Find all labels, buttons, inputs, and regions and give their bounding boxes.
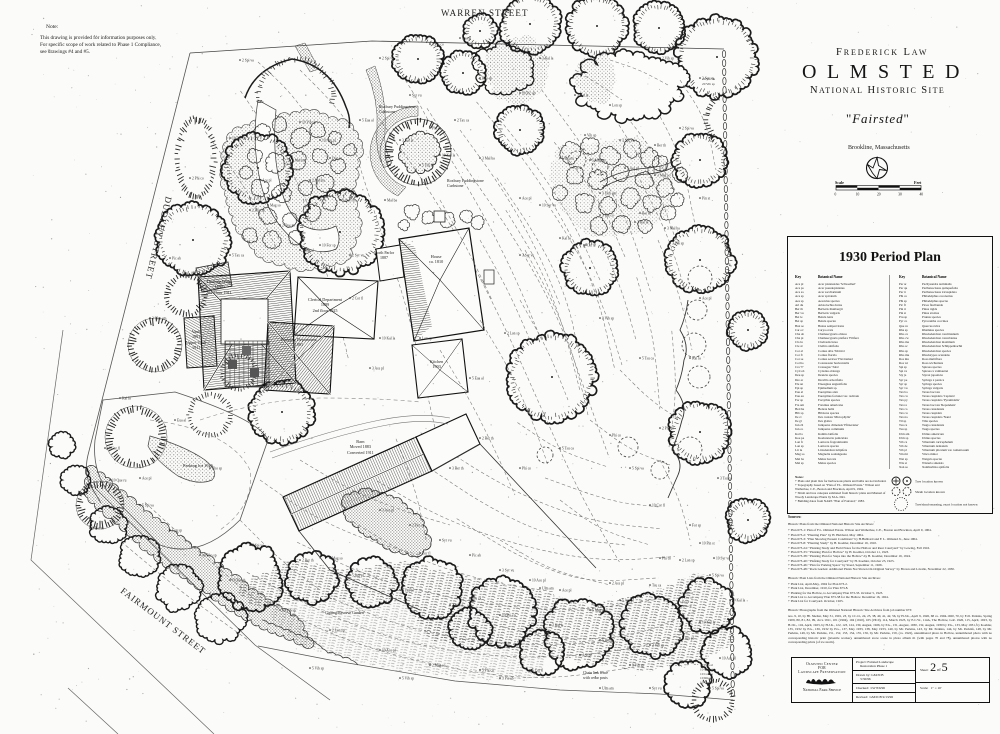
svg-text:2 Spi va: 2 Spi va [242, 59, 254, 63]
svg-text:Kal la: Kal la [562, 237, 571, 241]
svg-text:2 Mal ba: 2 Mal ba [312, 179, 325, 183]
svg-text:3 Vib sp: 3 Vib sp [672, 242, 684, 246]
svg-text:Tsu ca: Tsu ca [652, 584, 662, 588]
svg-text:5 Spi va: 5 Spi va [712, 574, 724, 578]
svg-text:10: 10 [856, 193, 860, 197]
svg-text:5 Phi co: 5 Phi co [482, 669, 494, 673]
svg-text:3 Syr vu: 3 Syr vu [622, 139, 634, 143]
svg-text:10 Tax cu: 10 Tax cu [700, 681, 714, 685]
svg-text:2 Rho sp: 2 Rho sp [252, 209, 265, 213]
svg-text:5 Tsu ca: 5 Tsu ca [562, 447, 574, 451]
svg-text:5 Tax ca: 5 Tax ca [232, 254, 244, 258]
svg-text:Phi co: Phi co [522, 467, 531, 471]
svg-text:10 Kal la: 10 Kal la [382, 337, 396, 341]
svg-text:10 Kal la: 10 Kal la [442, 154, 456, 158]
svg-text:Que ru: Que ru [332, 157, 342, 161]
svg-text:Tsu ca: Tsu ca [472, 597, 482, 601]
svg-text:5 Tax ca: 5 Tax ca [602, 52, 614, 56]
svg-text:Rho sp: Rho sp [212, 467, 222, 471]
svg-text:10 Ace pl: 10 Ace pl [322, 139, 336, 143]
svg-text:5 Ace pl: 5 Ace pl [622, 599, 634, 603]
svg-text:Tree location known: Tree location known [915, 480, 943, 484]
svg-text:3 Kal la: 3 Kal la [402, 139, 414, 143]
svg-text:10 Rho sp: 10 Rho sp [202, 554, 217, 558]
svg-text:Scale: Scale [835, 180, 844, 185]
svg-text:3 Ulm am: 3 Ulm am [152, 317, 167, 321]
svg-text:5 Phi co: 5 Phi co [432, 43, 444, 47]
svg-text:3 Ace pl: 3 Ace pl [382, 509, 394, 513]
svg-text:2 Ace pl: 2 Ace pl [612, 582, 624, 586]
svg-text:Kal la: Kal la [122, 397, 131, 401]
svg-text:2 Spi va: 2 Spi va [682, 127, 694, 131]
svg-text:2 Lon sp: 2 Lon sp [507, 332, 520, 336]
svg-text:10 Cor se: 10 Cor se [700, 672, 713, 676]
svg-text:10 Pin st: 10 Pin st [702, 542, 715, 546]
svg-text:5 Mag so: 5 Mag so [592, 159, 606, 163]
svg-text:5 Vib sp: 5 Vib sp [422, 164, 434, 168]
svg-text:5 Ace pl: 5 Ace pl [627, 167, 639, 171]
svg-text:Syr vu: Syr vu [652, 687, 662, 691]
svg-text:10 For sp: 10 For sp [322, 244, 336, 248]
svg-text:5 Eua al: 5 Eua al [362, 119, 374, 123]
svg-text:3 Pic ab: 3 Pic ab [502, 677, 514, 681]
svg-text:3 Ber th: 3 Ber th [452, 467, 464, 471]
svg-text:Lon sp: Lon sp [612, 104, 622, 108]
svg-text:3 Ulm am: 3 Ulm am [602, 192, 617, 196]
svg-text:3 Mal ba: 3 Mal ba [482, 157, 495, 161]
svg-text:3 Syr vu: 3 Syr vu [502, 569, 514, 573]
svg-text:Phi co: Phi co [662, 557, 671, 561]
svg-text:10 Ber th: 10 Ber th [232, 579, 246, 583]
svg-text:5 Spi va: 5 Spi va [632, 467, 644, 471]
svg-text:0: 0 [835, 193, 837, 197]
svg-text:5 Ber th: 5 Ber th [602, 639, 614, 643]
svg-text:10 Rho vi: 10 Rho vi [700, 676, 713, 680]
svg-text:2 Lon sp: 2 Lon sp [332, 629, 345, 633]
svg-text:For sp: For sp [692, 524, 701, 528]
svg-text:10 Cor al: 10 Cor al [700, 667, 713, 671]
svg-text:3 Phi co: 3 Phi co [602, 214, 614, 218]
svg-text:Phi co: Phi co [612, 434, 621, 438]
svg-text:5 Spi va: 5 Spi va [712, 687, 724, 691]
svg-text:2 Spi va: 2 Spi va [382, 57, 394, 61]
svg-text:Shrub location known: Shrub location known [915, 490, 945, 494]
svg-text:WARREN STREET: WARREN STREET [441, 8, 529, 18]
svg-text:3 Kal la: 3 Kal la [542, 57, 554, 61]
svg-text:2 Syr vu: 2 Syr vu [352, 254, 364, 258]
svg-text:5 Spi va: 5 Spi va [252, 544, 264, 548]
svg-text:3 Kal la: 3 Kal la [577, 94, 589, 98]
svg-text:10 Kal la: 10 Kal la [702, 621, 716, 625]
svg-text:Mag so: Mag so [270, 204, 281, 208]
svg-text:Ace pl: Ace pl [582, 654, 591, 658]
svg-text:10 Cor fl: 10 Cor fl [652, 504, 665, 508]
svg-text:Phi co: Phi co [432, 127, 441, 131]
svg-text:2 Ber th: 2 Ber th [482, 437, 494, 441]
svg-text:Eua al: Eua al [177, 419, 186, 423]
svg-text:Cor fl: Cor fl [587, 244, 595, 248]
svg-text:Eua al: Eua al [462, 37, 471, 41]
svg-text:10 Eua al: 10 Eua al [700, 663, 713, 667]
svg-text:Syr vu: Syr vu [442, 539, 452, 543]
svg-text:2 Que ru: 2 Que ru [282, 224, 295, 228]
svg-text:2 Vib sp: 2 Vib sp [662, 57, 674, 61]
svg-text:2 Pin st: 2 Pin st [452, 604, 463, 608]
svg-text:5 Mag so: 5 Mag so [592, 609, 606, 613]
svg-text:Pic ab: Pic ab [172, 257, 181, 261]
svg-text:2 Mag so: 2 Mag so [432, 664, 446, 668]
svg-text:3 Ber th: 3 Ber th [92, 527, 104, 531]
svg-text:3 Tsu ca: 3 Tsu ca [720, 477, 732, 481]
svg-text:7 Tax ca: 7 Tax ca [680, 604, 692, 608]
svg-text:10 Vib sp: 10 Vib sp [302, 121, 316, 125]
svg-text:5 Vib sp: 5 Vib sp [402, 677, 414, 681]
svg-text:3 Kal la: 3 Kal la [552, 624, 564, 628]
svg-text:10 Ace pl: 10 Ace pl [532, 579, 546, 583]
svg-text:Feet: Feet [914, 180, 922, 185]
svg-text:Vib sp: Vib sp [587, 134, 596, 138]
svg-text:2 Kal la: 2 Kal la [637, 221, 649, 225]
svg-text:10 Ace pl: 10 Ace pl [722, 657, 736, 661]
svg-text:3 Ace pl: 3 Ace pl [372, 367, 384, 371]
svg-text:Ace pl: Ace pl [522, 197, 531, 201]
svg-text:Lon sp: Lon sp [422, 337, 432, 341]
svg-text:2 Phi co: 2 Phi co [662, 427, 674, 431]
svg-text:3 Vib sp: 3 Vib sp [632, 664, 644, 668]
svg-text:3 Syr vu: 3 Syr vu [702, 77, 714, 81]
svg-text:Ace pl: Ace pl [262, 179, 271, 183]
svg-text:Tree/shrub massing, exact loca: Tree/shrub massing, exact location not k… [915, 503, 978, 508]
svg-text:30: 30 [898, 193, 902, 197]
svg-text:2 Tax ca: 2 Tax ca [412, 524, 424, 528]
svg-text:5 Ace pl: 5 Ace pl [682, 637, 694, 641]
svg-text:10 Cor se: 10 Cor se [680, 600, 693, 604]
svg-text:Ulm am: Ulm am [562, 157, 574, 161]
svg-text:5 Ace pl: 5 Ace pl [352, 574, 364, 578]
svg-text:10 Que ru: 10 Que ru [112, 479, 127, 483]
svg-text:5 Que ru: 5 Que ru [342, 199, 355, 203]
svg-text:40: 40 [920, 193, 924, 197]
svg-text:5 Eua al: 5 Eua al [302, 249, 314, 253]
svg-text:2 Lon sp: 2 Lon sp [682, 559, 695, 563]
svg-text:10 Kal la: 10 Kal la [732, 599, 746, 603]
svg-text:Ace pl: Ace pl [562, 589, 571, 593]
svg-text:10 Cor fl: 10 Cor fl [107, 447, 120, 451]
svg-text:10 Cor al: 10 Cor al [680, 595, 693, 599]
svg-text:Syr vu: Syr vu [412, 94, 422, 98]
svg-text:3 Mag so: 3 Mag so [657, 174, 671, 178]
svg-text:Mal ba: Mal ba [387, 199, 397, 203]
svg-text:2 Ber th: 2 Ber th [302, 559, 314, 563]
svg-text:Ulm am: Ulm am [602, 687, 614, 691]
svg-text:Cor fl: Cor fl [422, 552, 430, 556]
svg-text:Mag so: Mag so [332, 557, 343, 561]
svg-text:Ace pl: Ace pl [702, 297, 711, 301]
svg-text:FAIRMOUNT STREET: FAIRMOUNT STREET [119, 586, 208, 657]
svg-text:3 Mal ba: 3 Mal ba [667, 227, 680, 231]
svg-text:Pin st: Pin st [702, 197, 710, 201]
svg-text:5 Spi va: 5 Spi va [142, 504, 154, 508]
svg-text:10 Syr vu: 10 Syr vu [716, 557, 730, 561]
svg-text:10 Eua al: 10 Eua al [680, 591, 693, 595]
svg-text:5 Tsu ca: 5 Tsu ca [642, 357, 654, 361]
svg-text:10 Phi co: 10 Phi co [502, 614, 516, 618]
svg-text:5 Vib sp: 5 Vib sp [312, 667, 324, 671]
svg-text:3 Tsu ca: 3 Tsu ca [402, 589, 414, 593]
svg-text:2 Tax ca: 2 Tax ca [457, 119, 469, 123]
svg-text:Ace pl: Ace pl [142, 477, 151, 481]
svg-text:DUDLEY STREET: DUDLEY STREET [144, 196, 174, 281]
svg-text:Rho sp: Rho sp [482, 77, 492, 81]
svg-text:10 Ace pl: 10 Ace pl [382, 649, 396, 653]
svg-text:Kal la: Kal la [692, 357, 701, 361]
svg-text:10 Ber th: 10 Ber th [232, 137, 246, 141]
svg-text:2 Mal ba: 2 Mal ba [292, 159, 305, 163]
svg-text:5 Cor fl: 5 Cor fl [532, 669, 543, 673]
svg-text:2 Phi co: 2 Phi co [192, 177, 204, 181]
svg-text:5 Eua al: 5 Eua al [472, 377, 484, 381]
svg-text:2 Vib sp: 2 Vib sp [652, 644, 664, 648]
svg-text:20: 20 [877, 193, 881, 197]
svg-text:2 Cor fl: 2 Cor fl [352, 297, 363, 301]
svg-text:Ber th: Ber th [657, 144, 666, 148]
svg-text:Pic ab: Pic ab [472, 554, 481, 558]
svg-text:3 Vib sp: 3 Vib sp [602, 317, 614, 321]
svg-text:Lon sp: Lon sp [172, 529, 182, 533]
svg-text:10 Pic ab: 10 Pic ab [522, 92, 536, 96]
svg-text:Ulm am: Ulm am [542, 587, 554, 591]
svg-text:Ber th: Ber th [642, 212, 651, 216]
svg-text:20 Vib sp: 20 Vib sp [702, 82, 715, 86]
svg-text:10 Vib sp: 10 Vib sp [282, 609, 296, 613]
